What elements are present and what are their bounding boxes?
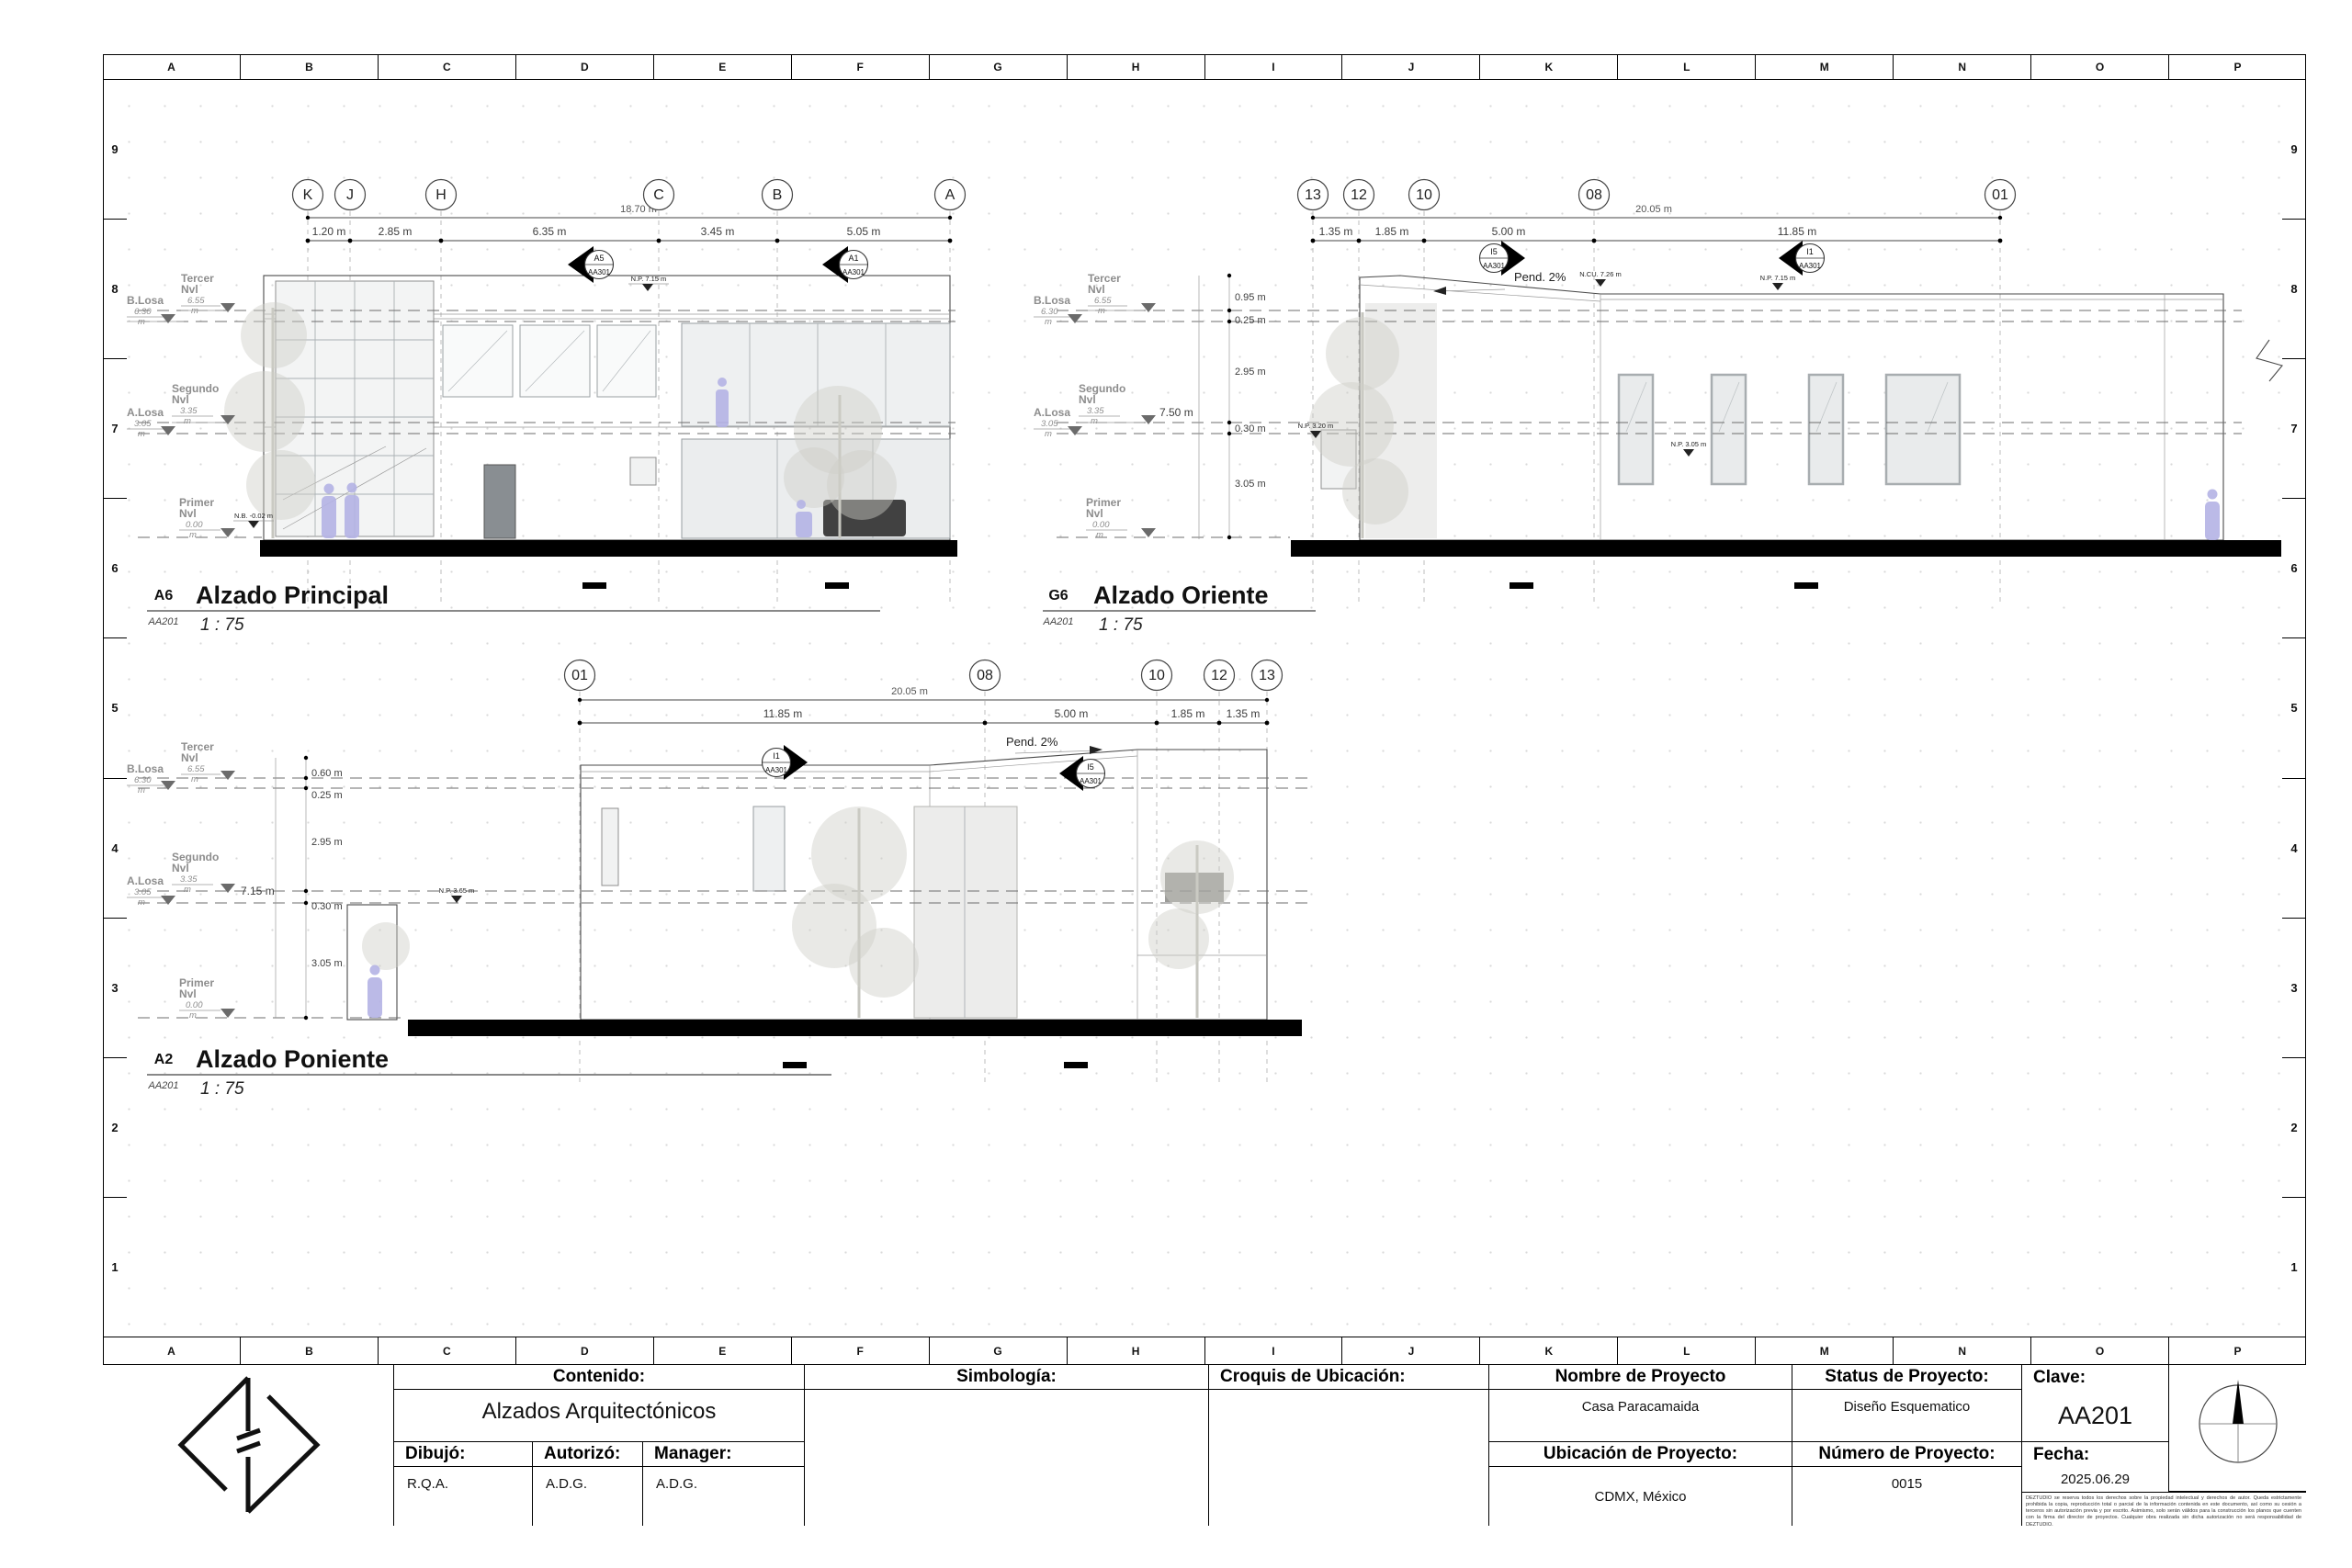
tree	[1148, 840, 1234, 1018]
svg-text:1.85 m: 1.85 m	[1171, 707, 1205, 720]
grid-letter: J	[1341, 54, 1479, 79]
svg-text:6.35 m: 6.35 m	[533, 225, 567, 238]
svg-text:3.05 m: 3.05 m	[311, 958, 343, 969]
fecha-label: Fecha:	[2022, 1441, 2168, 1467]
svg-text:01: 01	[1992, 187, 2008, 203]
grid-letter: E	[653, 54, 791, 79]
grid-letter: A	[103, 54, 240, 79]
grid-bubble: 13	[1298, 180, 1329, 210]
grid-letter: L	[1617, 1337, 1755, 1364]
grid-letter: E	[653, 1337, 791, 1364]
svg-text:A5: A5	[594, 254, 604, 263]
grid-bubble: 08	[1579, 180, 1610, 210]
grid-letter: A	[103, 1337, 240, 1364]
svg-text:m: m	[191, 774, 198, 784]
grid-bubble: 13	[1252, 660, 1283, 691]
compass-cell	[2168, 1365, 2306, 1492]
shrub	[362, 922, 410, 970]
svg-text:A.Losa: A.Losa	[127, 406, 164, 419]
svg-text:6.55: 6.55	[1094, 296, 1112, 306]
grid-bubble: A	[935, 180, 966, 210]
north-compass-icon	[2169, 1365, 2307, 1492]
autorizo-value: A.D.G.	[532, 1467, 642, 1526]
grid-letter: O	[2030, 54, 2168, 79]
svg-text:A1: A1	[848, 254, 858, 263]
dibujo-label: Dibujó:	[394, 1441, 532, 1467]
level-marker-tercer: Tercer Nvl 6.55 m	[181, 740, 235, 784]
svg-text:J: J	[346, 187, 354, 203]
svg-text:1.35 m: 1.35 m	[1319, 225, 1353, 238]
human-figure	[2205, 490, 2220, 541]
contenido-value: Alzados Arquitectónicos	[394, 1390, 804, 1441]
svg-text:2.95 m: 2.95 m	[1235, 367, 1266, 378]
svg-text:C: C	[653, 187, 664, 203]
svg-text:AA301: AA301	[588, 268, 611, 276]
croquis-label: Croquis de Ubicación:	[1209, 1365, 1488, 1390]
svg-text:5.05 m: 5.05 m	[847, 225, 881, 238]
nombre-label: Nombre de Proyecto	[1489, 1365, 1792, 1390]
svg-text:I5: I5	[1087, 762, 1094, 772]
svg-text:1 : 75: 1 : 75	[1099, 615, 1143, 635]
section-marker: A1 AA301	[822, 246, 868, 283]
level-marker-primer: Primer Nvl 0.00 m	[179, 496, 235, 540]
svg-text:20.05 m: 20.05 m	[1635, 204, 1672, 215]
svg-text:Nvl: Nvl	[1086, 507, 1103, 520]
border-column-letters-top: ABCDEFGHIJKLMNOP	[103, 54, 2306, 80]
grid-letter: I	[1204, 1337, 1342, 1364]
grid-bubble: 10	[1409, 180, 1440, 210]
svg-text:AA301: AA301	[1799, 262, 1822, 270]
svg-text:m: m	[1098, 306, 1105, 316]
grid-bubble: 12	[1344, 180, 1374, 210]
svg-text:m: m	[1096, 530, 1103, 540]
svg-text:1 : 75: 1 : 75	[200, 615, 244, 635]
svg-text:3.35: 3.35	[180, 874, 198, 885]
spot-elevation: N.B. -0.02 m	[233, 512, 274, 528]
svg-text:10: 10	[1416, 187, 1432, 203]
spot-elevation: N.P. 7.15 m	[1760, 274, 1796, 290]
section-marker: A5 AA301	[568, 246, 614, 283]
svg-text:m: m	[184, 416, 191, 426]
svg-text:13: 13	[1259, 668, 1275, 683]
dimension-lines: 18.70 m 1.20 m 2.85 m 6.35 m 3.45 m 5.05…	[306, 204, 953, 243]
grid-letter: C	[378, 1337, 515, 1364]
svg-text:AA201: AA201	[147, 616, 178, 627]
svg-text:m: m	[1045, 429, 1052, 439]
clave-value: AA201	[2022, 1390, 2168, 1441]
svg-text:m: m	[1045, 317, 1052, 327]
svg-text:A: A	[945, 187, 955, 203]
svg-text:08: 08	[1586, 187, 1602, 203]
svg-text:Nvl: Nvl	[181, 751, 198, 764]
svg-text:I1: I1	[1806, 247, 1814, 256]
vertical-dimension-string: 0.95 m 0.25 m 2.95 m 0.30 m 3.05 m	[1199, 274, 1266, 539]
svg-text:3.05: 3.05	[1041, 419, 1058, 429]
spot-elevation: N.P. 3.05 m	[1671, 440, 1707, 457]
level-marker-primer: Primer Nvl 0.00 m	[179, 976, 235, 1021]
svg-text:AA201: AA201	[147, 1080, 178, 1091]
svg-text:m: m	[189, 1010, 197, 1021]
svg-text:11.85 m: 11.85 m	[1778, 225, 1816, 238]
level-marker-tercer: Tercer Nvl 6.55 m	[181, 272, 235, 316]
grid-letter: O	[2030, 1337, 2168, 1364]
svg-text:Pend. 2%: Pend. 2%	[1006, 735, 1058, 749]
svg-text:A.Losa: A.Losa	[1034, 406, 1070, 419]
svg-text:7.15 m: 7.15 m	[241, 885, 275, 897]
svg-text:5.00 m: 5.00 m	[1492, 225, 1526, 238]
svg-text:13: 13	[1305, 187, 1321, 203]
grid-number: 1	[103, 1197, 127, 1337]
svg-text:1.20 m: 1.20 m	[312, 225, 346, 238]
title-block: Contenido: Alzados Arquitectónicos Dibuj…	[103, 1364, 2306, 1525]
human-figure	[367, 965, 382, 1019]
spot-elevation: N.P. 7.15 m	[628, 275, 669, 291]
grid-letter: B	[240, 54, 378, 79]
building-oriente	[1321, 276, 2282, 540]
svg-text:K: K	[303, 187, 313, 203]
svg-text:Nvl: Nvl	[179, 507, 197, 520]
grid-letter: H	[1067, 1337, 1204, 1364]
svg-text:m: m	[1091, 416, 1098, 426]
svg-text:B.Losa: B.Losa	[127, 294, 164, 307]
ubicacion-value: CDMX, México	[1489, 1467, 1792, 1526]
grid-letter: D	[515, 54, 653, 79]
numero-value: 0015	[1792, 1467, 2021, 1526]
svg-text:3.05: 3.05	[134, 419, 152, 429]
grid-letter: M	[1755, 54, 1893, 79]
svg-text:m: m	[184, 885, 191, 895]
grid-letter: P	[2168, 54, 2306, 79]
svg-text:m: m	[138, 429, 145, 439]
level-marker-b-losa: B.Losa 6.30 m	[127, 762, 175, 795]
svg-text:2.85 m: 2.85 m	[379, 225, 413, 238]
status-label: Status de Proyecto:	[1792, 1365, 2021, 1390]
svg-text:3.05: 3.05	[134, 887, 152, 897]
svg-text:B.Losa: B.Losa	[127, 762, 164, 775]
section-marker: I1 AA301	[1779, 241, 1825, 276]
spot-elevation: N.P. 3.65 m	[439, 886, 475, 903]
ubicacion-label: Ubicación de Proyecto:	[1489, 1441, 1792, 1467]
level-marker-tercer: Tercer Nvl 6.55 m	[1088, 272, 1156, 316]
grid-number: 1	[2282, 1197, 2306, 1337]
svg-text:12: 12	[1351, 187, 1367, 203]
door	[484, 465, 515, 538]
svg-text:0.00: 0.00	[186, 520, 203, 530]
svg-text:m: m	[189, 530, 197, 540]
svg-text:10: 10	[1148, 668, 1165, 683]
level-marker-segundo: Segundo Nvl 3.35 m 7.50 m	[1079, 382, 1193, 426]
svg-text:I5: I5	[1490, 247, 1498, 256]
manager-value: A.D.G.	[642, 1467, 805, 1526]
svg-text:Nvl: Nvl	[172, 393, 189, 406]
svg-text:N.P. 7.15 m: N.P. 7.15 m	[631, 275, 667, 283]
svg-text:01: 01	[571, 668, 588, 683]
grid-letter: H	[1067, 54, 1204, 79]
grid-letter: K	[1479, 54, 1617, 79]
view-title-poniente: A2 Alzado Poniente AA201 1 : 75	[147, 1045, 831, 1099]
grid-letter: B	[240, 1337, 378, 1364]
nombre-value: Casa Paracamaida	[1489, 1390, 1792, 1441]
grid-bubble: 01	[1985, 180, 2016, 210]
svg-text:Nvl: Nvl	[179, 987, 197, 1000]
numero-label: Número de Proyecto:	[1792, 1441, 2021, 1467]
svg-text:0.00: 0.00	[186, 1000, 203, 1010]
svg-text:Alzado Principal: Alzado Principal	[196, 581, 389, 609]
logo-cell	[103, 1365, 393, 1526]
svg-text:B.Losa: B.Losa	[1034, 294, 1070, 307]
fecha-value: 2025.06.29	[2022, 1467, 2168, 1492]
grid-letter: N	[1893, 1337, 2030, 1364]
svg-text:Nvl: Nvl	[172, 862, 189, 874]
clave-label: Clave:	[2022, 1365, 2168, 1390]
svg-text:Alzado Poniente: Alzado Poniente	[196, 1045, 389, 1073]
svg-text:Pend. 2%: Pend. 2%	[1514, 270, 1566, 284]
grid-bubble: 08	[970, 660, 1001, 691]
level-marker-b-losa: B.Losa 6.30 m	[127, 294, 184, 327]
svg-text:3.45 m: 3.45 m	[701, 225, 735, 238]
svg-text:N.P. 3.20 m: N.P. 3.20 m	[1298, 422, 1334, 430]
elevation-principal: B.Losa 6.30 m Tercer Nvl 6.55 m Segundo …	[110, 129, 1020, 652]
svg-text:I1: I1	[773, 751, 780, 761]
svg-text:0.30 m: 0.30 m	[1235, 423, 1266, 434]
grid-letter: M	[1755, 1337, 1893, 1364]
studio-logo	[103, 1365, 393, 1526]
grid-bubble: B	[763, 180, 793, 210]
svg-text:1.85 m: 1.85 m	[1375, 225, 1409, 238]
simbologia-label: Simbología:	[805, 1365, 1208, 1390]
svg-text:AA301: AA301	[842, 268, 865, 276]
svg-text:1 : 75: 1 : 75	[200, 1079, 244, 1099]
slope-annotation: Pend. 2%	[1006, 735, 1102, 754]
dibujo-value: R.Q.A.	[394, 1467, 532, 1526]
svg-text:AA301: AA301	[1080, 777, 1102, 785]
ground-band	[1291, 540, 2281, 589]
svg-text:6.30: 6.30	[1041, 307, 1058, 317]
svg-text:N.P. 3.65 m: N.P. 3.65 m	[439, 886, 475, 895]
svg-text:G6: G6	[1048, 588, 1068, 604]
grid-bubble: K	[293, 180, 323, 210]
svg-text:7.50 m: 7.50 m	[1159, 406, 1193, 419]
grid-letter: K	[1479, 1337, 1617, 1364]
svg-text:5.00 m: 5.00 m	[1055, 707, 1089, 720]
dimension-lines: 20.05 m 11.85 m 5.00 m 1.85 m 1.35 m	[578, 686, 1270, 725]
svg-text:6.55: 6.55	[187, 764, 205, 774]
svg-text:3.35: 3.35	[180, 406, 198, 416]
svg-text:m: m	[138, 785, 145, 795]
grid-letter: D	[515, 1337, 653, 1364]
svg-text:AA301: AA301	[1483, 262, 1506, 270]
tree	[224, 302, 316, 538]
svg-text:A2: A2	[154, 1052, 174, 1067]
spot-elevation: N.CU. 7.26 m	[1579, 270, 1621, 287]
elevation-poniente: B.Losa 6.30 m Tercer Nvl 6.55 m Segundo …	[110, 643, 1415, 1157]
vertical-dimension-string: 0.60 m 0.25 m 2.95 m 0.30 m 3.05 m	[276, 756, 343, 1020]
ground-band	[408, 1020, 1302, 1068]
contenido-cell: Contenido: Alzados Arquitectónicos Dibuj…	[393, 1365, 804, 1526]
svg-text:Alzado Oriente: Alzado Oriente	[1093, 581, 1269, 609]
svg-text:m: m	[138, 897, 145, 908]
svg-text:6.30: 6.30	[134, 307, 152, 317]
svg-text:N.CU. 7.26 m: N.CU. 7.26 m	[1579, 270, 1621, 278]
svg-text:11.85 m: 11.85 m	[763, 707, 802, 720]
svg-text:N.P. 3.05 m: N.P. 3.05 m	[1671, 440, 1707, 448]
grid-bubble: H	[426, 180, 457, 210]
border-column-letters-bottom: ABCDEFGHIJKLMNOP	[103, 1337, 2306, 1364]
grid-number: 4	[2282, 778, 2306, 918]
svg-text:AA201: AA201	[1042, 616, 1073, 627]
drawing-sheet: ABCDEFGHIJKLMNOP ABCDEFGHIJKLMNOP 987654…	[0, 0, 2352, 1568]
svg-text:3.35: 3.35	[1087, 406, 1104, 416]
svg-text:Nvl: Nvl	[1079, 393, 1096, 406]
manager-label: Manager:	[642, 1441, 805, 1467]
svg-text:12: 12	[1211, 668, 1227, 683]
svg-text:2.95 m: 2.95 m	[311, 837, 343, 848]
svg-text:B: B	[773, 187, 783, 203]
contenido-label: Contenido:	[394, 1365, 804, 1390]
grid-letter: I	[1204, 54, 1342, 79]
svg-text:3.05 m: 3.05 m	[1235, 479, 1266, 490]
grid-letter: G	[929, 1337, 1067, 1364]
level-marker-primer: Primer Nvl 0.00 m	[1086, 496, 1156, 540]
nombre-cell: Nombre de Proyecto Casa Paracamaida Ubic…	[1488, 1365, 1792, 1526]
svg-text:0.00: 0.00	[1092, 520, 1110, 530]
svg-text:Nvl: Nvl	[181, 283, 198, 296]
grid-letter: F	[791, 54, 929, 79]
grid-bubble: 12	[1204, 660, 1235, 691]
svg-text:6.30: 6.30	[134, 775, 152, 785]
svg-text:0.60 m: 0.60 m	[311, 768, 343, 779]
tree	[792, 807, 919, 1018]
view-title-principal: A6 Alzado Principal AA201 1 : 75	[147, 581, 880, 635]
grid-letter: C	[378, 54, 515, 79]
svg-text:Nvl: Nvl	[1088, 283, 1105, 296]
section-marker: I1 AA301	[763, 745, 808, 780]
grid-number: 5	[2282, 637, 2306, 777]
grid-bubble: 10	[1142, 660, 1172, 691]
break-line	[2256, 340, 2282, 381]
svg-text:N.P. 7.15 m: N.P. 7.15 m	[1760, 274, 1796, 282]
grid-letter: L	[1617, 54, 1755, 79]
svg-text:1.35 m: 1.35 m	[1227, 707, 1261, 720]
grid-bubble: 01	[565, 660, 595, 691]
svg-text:m: m	[138, 317, 145, 327]
grid-letter: G	[929, 54, 1067, 79]
elevation-oriente: B.Losa 6.30 m Tercer Nvl 6.55 m Segundo …	[1020, 129, 2315, 652]
croquis-cell: Croquis de Ubicación:	[1208, 1365, 1488, 1526]
svg-text:H: H	[435, 187, 447, 203]
svg-text:20.05 m: 20.05 m	[891, 686, 928, 697]
simbologia-cell: Simbología:	[804, 1365, 1208, 1526]
building-poniente	[347, 750, 1267, 1020]
legal-disclaimer: DEZTUDIO se reserva todos los derechos s…	[2021, 1492, 2306, 1526]
grid-letter: N	[1893, 54, 2030, 79]
svg-text:0.25 m: 0.25 m	[311, 790, 343, 801]
grid-bubble: J	[335, 180, 366, 210]
svg-text:N.B. -0.02 m: N.B. -0.02 m	[234, 512, 273, 520]
svg-text:0.30 m: 0.30 m	[311, 901, 343, 912]
status-value: Diseño Esquematico	[1792, 1390, 2021, 1441]
autorizo-label: Autorizó:	[532, 1441, 642, 1467]
svg-text:m: m	[191, 306, 198, 316]
grid-bubble: C	[644, 180, 674, 210]
svg-text:AA301: AA301	[765, 766, 788, 774]
svg-text:0.95 m: 0.95 m	[1235, 292, 1266, 303]
grid-letter: F	[791, 1337, 929, 1364]
svg-text:A.Losa: A.Losa	[127, 874, 164, 887]
grid-number: 3	[2282, 918, 2306, 1057]
grid-letter: J	[1341, 1337, 1479, 1364]
grid-letter: P	[2168, 1337, 2306, 1364]
svg-text:6.55: 6.55	[187, 296, 205, 306]
svg-text:08: 08	[977, 668, 993, 683]
svg-text:A6: A6	[154, 588, 174, 604]
svg-text:0.25 m: 0.25 m	[1235, 315, 1266, 326]
grid-number: 2	[2282, 1057, 2306, 1197]
dimension-lines: 20.05 m 1.35 m 1.85 m 5.00 m 11.85 m	[1311, 204, 2003, 243]
status-cell: Status de Proyecto: Diseño Esquematico N…	[1792, 1365, 2021, 1526]
view-title-oriente: G6 Alzado Oriente AA201 1 : 75	[1042, 581, 1316, 635]
level-marker-segundo: Segundo Nvl 3.35 m 7.15 m	[172, 851, 275, 897]
